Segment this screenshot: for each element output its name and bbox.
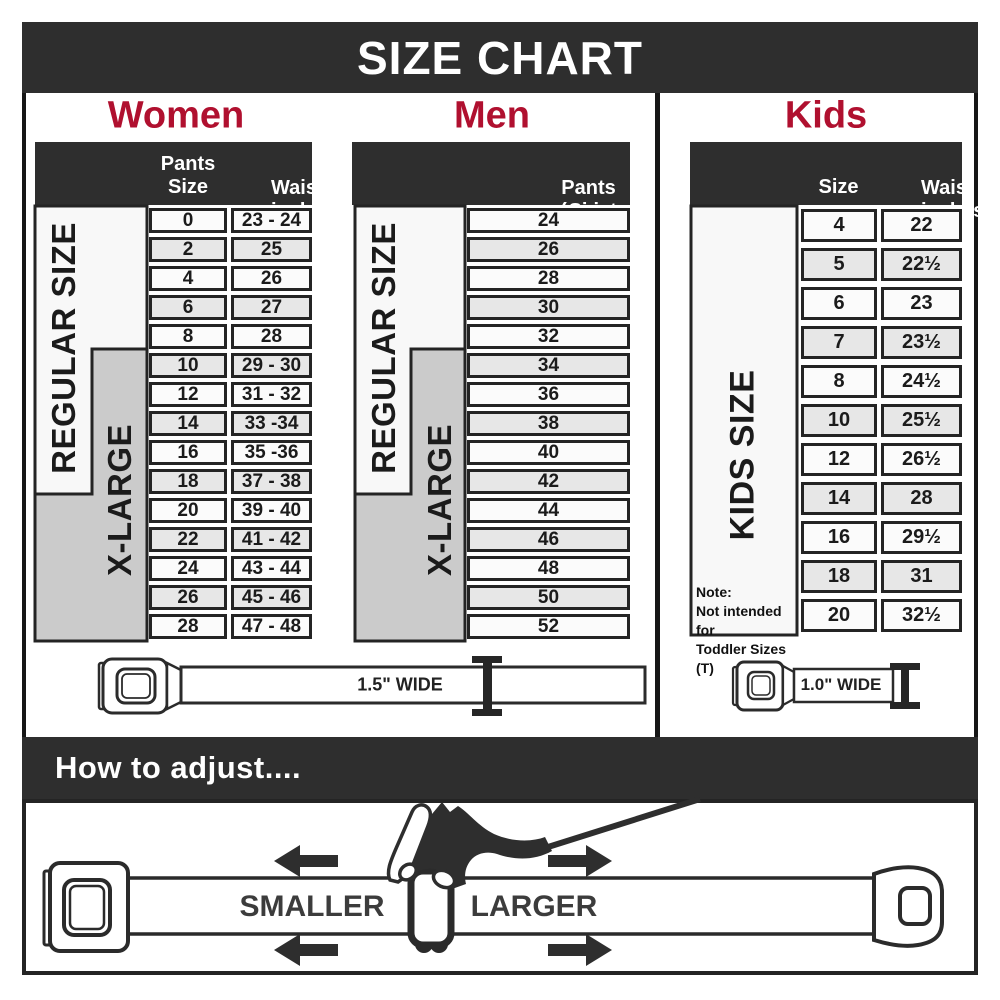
table-cell: 26: [149, 585, 227, 610]
table-cell: 4: [149, 266, 227, 291]
table-row: 723½: [801, 323, 962, 362]
table-cell: 52: [467, 614, 630, 639]
men-rows: 242628303234363840424446485052: [467, 206, 630, 641]
table-cell: 46: [467, 527, 630, 552]
table-cell: 12: [149, 382, 227, 407]
table-row: 1231 - 32: [149, 380, 312, 409]
table-cell: 23 - 24: [231, 208, 312, 233]
table-cell: 40: [467, 440, 630, 465]
kids-heading: Kids: [785, 95, 867, 138]
table-row: 52: [467, 612, 630, 641]
size-chart-page: SIZE CHART Women Men Kids Pants Size Wai…: [0, 0, 1000, 1000]
table-row: 28: [467, 264, 630, 293]
table-row: 48: [467, 554, 630, 583]
table-row: 1831: [801, 557, 962, 596]
kids-size-label: KIDS SIZE: [724, 370, 763, 541]
table-row: 34: [467, 351, 630, 380]
table-cell: 29½: [881, 521, 962, 554]
table-row: 1025½: [801, 401, 962, 440]
table-cell: 10: [149, 353, 227, 378]
men-xlarge-label: X-LARGE: [421, 424, 459, 576]
table-cell: 24: [467, 208, 630, 233]
kids-belt-width-label: 1.0" WIDE: [801, 675, 882, 695]
table-cell: 18: [149, 469, 227, 494]
table-row: 1428: [801, 479, 962, 518]
women-rows: 023 - 242254266278281029 - 301231 - 3214…: [149, 206, 312, 641]
belt-buckle-icon: [103, 659, 167, 713]
table-row: 26: [467, 235, 630, 264]
table-row: 36: [467, 380, 630, 409]
table-row: 1226½: [801, 440, 962, 479]
table-row: 225: [149, 235, 312, 264]
belt-tongue-icon: [167, 663, 181, 709]
kids-table-header: Size Waistinches: [690, 142, 962, 205]
table-cell: 10: [801, 404, 877, 437]
belt-buckle-flange-icon: [99, 663, 108, 709]
table-cell: 25: [231, 237, 312, 262]
kids-col-waist: Waistinches: [880, 177, 962, 200]
table-cell: 28: [881, 482, 962, 515]
table-cell: 16: [149, 440, 227, 465]
table-cell: 50: [467, 585, 630, 610]
width-marker-icon: [472, 656, 502, 716]
table-cell: 31: [881, 560, 962, 593]
table-cell: 26½: [881, 443, 962, 476]
table-cell: 8: [801, 365, 877, 398]
table-cell: 8: [149, 324, 227, 349]
table-cell: 25½: [881, 404, 962, 437]
table-row: 522½: [801, 245, 962, 284]
table-cell: 43 - 44: [231, 556, 312, 581]
table-cell: 6: [149, 295, 227, 320]
table-cell: 12: [801, 443, 877, 476]
table-cell: 39 - 40: [231, 498, 312, 523]
table-row: 2645 - 46: [149, 583, 312, 612]
table-row: 1029 - 30: [149, 351, 312, 380]
table-cell: 33 -34: [231, 411, 312, 436]
table-cell: 44: [467, 498, 630, 523]
title-bar: SIZE CHART: [22, 22, 978, 93]
table-row: 2039 - 40: [149, 496, 312, 525]
table-cell: 28: [231, 324, 312, 349]
table-cell: 34: [467, 353, 630, 378]
table-row: 2443 - 44: [149, 554, 312, 583]
table-row: 426: [149, 264, 312, 293]
table-row: 1635 -36: [149, 438, 312, 467]
table-cell: 29 - 30: [231, 353, 312, 378]
table-cell: 23½: [881, 326, 962, 359]
table-cell: 36: [467, 382, 630, 407]
table-row: 828: [149, 322, 312, 351]
table-cell: 28: [149, 614, 227, 639]
table-cell: 24: [149, 556, 227, 581]
men-heading: Men: [454, 95, 530, 138]
table-cell: 32: [467, 324, 630, 349]
table-cell: 28: [467, 266, 630, 291]
kids-col-size: Size: [798, 176, 879, 199]
table-row: 42: [467, 467, 630, 496]
table-cell: 18: [801, 560, 877, 593]
table-cell: 0: [149, 208, 227, 233]
table-cell: 22: [149, 527, 227, 552]
table-cell: 6: [801, 287, 877, 320]
table-cell: 42: [467, 469, 630, 494]
table-row: 32: [467, 322, 630, 351]
table-row: 24: [467, 206, 630, 235]
table-row: 627: [149, 293, 312, 322]
table-row: 2032½: [801, 596, 962, 635]
table-cell: 23: [881, 287, 962, 320]
kids-note: Note: Not intended for Toddler Sizes (T): [696, 583, 798, 677]
table-row: 2847 - 48: [149, 612, 312, 641]
table-row: 623: [801, 284, 962, 323]
table-cell: 5: [801, 248, 877, 281]
table-cell: 38: [467, 411, 630, 436]
adjust-diagram-panel: [22, 799, 978, 975]
table-cell: 4: [801, 209, 877, 242]
panel-divider: [655, 93, 660, 737]
women-col-waist: Waistinches: [231, 177, 311, 200]
table-row: 1837 - 38: [149, 467, 312, 496]
table-row: 824½: [801, 362, 962, 401]
table-cell: 45 - 46: [231, 585, 312, 610]
how-to-adjust-bar: How to adjust....: [22, 737, 978, 799]
table-row: 50: [467, 583, 630, 612]
table-cell: 14: [801, 482, 877, 515]
table-cell: 20: [149, 498, 227, 523]
table-cell: 27: [231, 295, 312, 320]
smaller-label: SMALLER: [240, 890, 385, 924]
women-regular-size-label: REGULAR SIZE: [45, 222, 83, 474]
table-row: 2241 - 42: [149, 525, 312, 554]
table-cell: 32½: [881, 599, 962, 632]
women-col-pants-size: Pants Size: [145, 153, 231, 199]
how-to-adjust-title: How to adjust....: [55, 750, 301, 786]
larger-label: LARGER: [471, 890, 598, 924]
table-cell: 47 - 48: [231, 614, 312, 639]
adult-belt-width-label: 1.5" WIDE: [357, 675, 443, 696]
table-cell: 37 - 38: [231, 469, 312, 494]
table-row: 46: [467, 525, 630, 554]
men-regular-size-label: REGULAR SIZE: [365, 222, 403, 474]
table-cell: 22: [881, 209, 962, 242]
table-cell: 26: [231, 266, 312, 291]
men-table-header: Pants Size(waist inches): [352, 142, 630, 205]
table-row: 1629½: [801, 518, 962, 557]
women-table-header: Pants Size Waistinches: [35, 142, 312, 205]
men-col-pants-size: Pants Size(waist inches): [464, 177, 630, 200]
width-marker-icon: [890, 663, 920, 709]
table-cell: 20: [801, 599, 877, 632]
table-cell: 26: [467, 237, 630, 262]
table-row: 30: [467, 293, 630, 322]
kids-rows: 422522½623723½824½1025½1226½14281629½183…: [801, 206, 962, 635]
table-cell: 14: [149, 411, 227, 436]
table-cell: 31 - 32: [231, 382, 312, 407]
table-row: 40: [467, 438, 630, 467]
table-row: 1433 -34: [149, 409, 312, 438]
table-cell: 48: [467, 556, 630, 581]
panel-border-right: [974, 93, 978, 737]
table-cell: 35 -36: [231, 440, 312, 465]
women-xlarge-label: X-LARGE: [101, 424, 139, 576]
table-row: 38: [467, 409, 630, 438]
table-cell: 30: [467, 295, 630, 320]
women-heading: Women: [108, 95, 245, 138]
page-title: SIZE CHART: [357, 31, 643, 85]
table-cell: 41 - 42: [231, 527, 312, 552]
table-cell: 2: [149, 237, 227, 262]
table-cell: 16: [801, 521, 877, 554]
table-cell: 22½: [881, 248, 962, 281]
table-row: 44: [467, 496, 630, 525]
table-row: 023 - 24: [149, 206, 312, 235]
panel-border-left: [22, 93, 26, 737]
table-row: 422: [801, 206, 962, 245]
table-cell: 7: [801, 326, 877, 359]
table-cell: 24½: [881, 365, 962, 398]
